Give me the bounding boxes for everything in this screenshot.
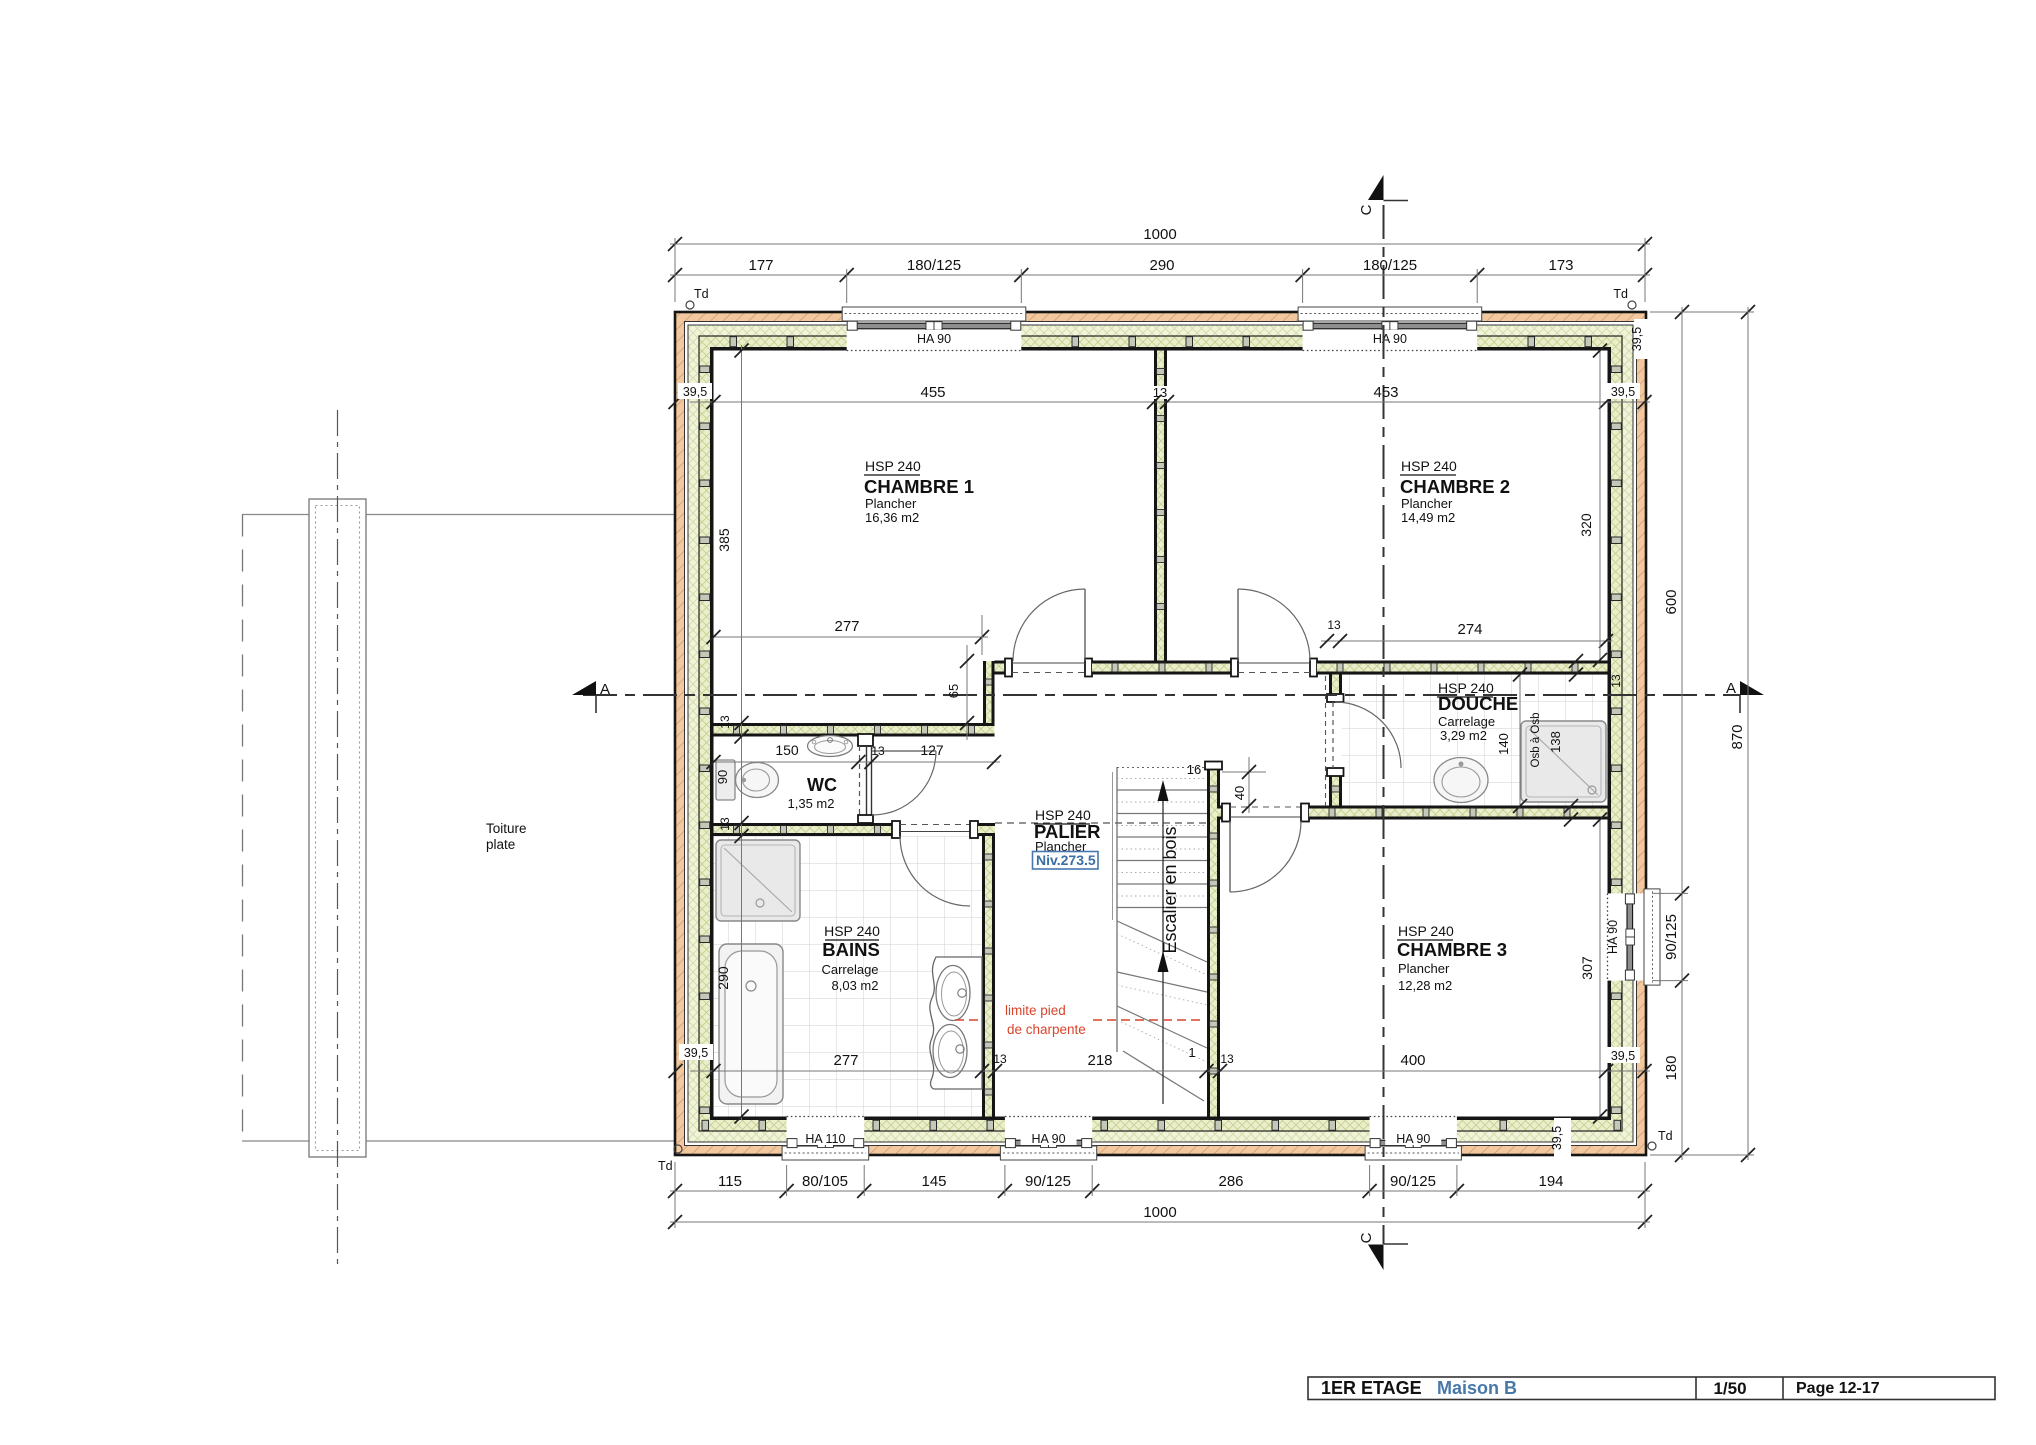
- svg-text:CHAMBRE 1: CHAMBRE 1: [864, 476, 974, 497]
- svg-text:Escalier en bois: Escalier en bois: [1160, 826, 1180, 953]
- svg-text:13: 13: [993, 1052, 1007, 1066]
- svg-text:127: 127: [920, 742, 944, 758]
- svg-text:HA 90: HA 90: [1032, 1132, 1066, 1146]
- svg-text:39,5: 39,5: [1550, 1126, 1564, 1150]
- svg-text:Carrelage: Carrelage: [821, 962, 878, 977]
- svg-text:13: 13: [1153, 385, 1167, 400]
- svg-text:A: A: [600, 681, 610, 698]
- svg-text:150: 150: [775, 742, 799, 758]
- svg-text:194: 194: [1538, 1173, 1563, 1190]
- svg-text:320: 320: [1578, 513, 1594, 537]
- svg-text:455: 455: [920, 384, 945, 401]
- svg-text:39,5: 39,5: [1611, 385, 1635, 399]
- svg-text:65: 65: [946, 684, 961, 698]
- svg-text:HA 90: HA 90: [1396, 1132, 1430, 1146]
- svg-text:1,35 m2: 1,35 m2: [788, 796, 835, 811]
- svg-text:HSP 240: HSP 240: [1398, 923, 1454, 939]
- svg-text:218: 218: [1087, 1052, 1112, 1069]
- svg-text:1: 1: [1188, 1045, 1195, 1060]
- svg-text:1000: 1000: [1143, 1204, 1176, 1221]
- svg-text:1000: 1000: [1143, 226, 1176, 243]
- svg-text:plate: plate: [486, 837, 515, 852]
- svg-text:13: 13: [1609, 674, 1623, 688]
- svg-text:177: 177: [748, 257, 773, 274]
- svg-text:140: 140: [1496, 733, 1511, 755]
- svg-text:3,29 m2: 3,29 m2: [1440, 728, 1487, 743]
- svg-text:173: 173: [1548, 257, 1573, 274]
- svg-text:CHAMBRE 3: CHAMBRE 3: [1397, 939, 1507, 960]
- svg-text:Osb à Osb: Osb à Osb: [1530, 713, 1542, 768]
- svg-text:453: 453: [1373, 384, 1398, 401]
- svg-text:90/125: 90/125: [1025, 1173, 1071, 1190]
- svg-text:Td: Td: [1658, 1129, 1673, 1143]
- svg-text:290: 290: [715, 966, 731, 990]
- svg-text:400: 400: [1400, 1052, 1425, 1069]
- svg-text:180: 180: [1663, 1055, 1680, 1080]
- svg-text:385: 385: [716, 528, 732, 552]
- svg-text:39,5: 39,5: [1630, 327, 1644, 351]
- svg-text:180/125: 180/125: [1363, 257, 1417, 274]
- svg-text:40: 40: [1232, 786, 1247, 800]
- svg-text:Plancher: Plancher: [1398, 961, 1450, 976]
- svg-text:12,28 m2: 12,28 m2: [1398, 978, 1452, 993]
- svg-text:C: C: [1358, 204, 1375, 215]
- svg-text:HSP 240: HSP 240: [1401, 458, 1457, 474]
- svg-text:HSP 240: HSP 240: [824, 923, 880, 939]
- svg-text:90/125: 90/125: [1390, 1173, 1436, 1190]
- svg-text:HA 110: HA 110: [805, 1132, 845, 1146]
- svg-text:8,03 m2: 8,03 m2: [832, 978, 879, 993]
- svg-text:90/125: 90/125: [1663, 914, 1680, 960]
- svg-text:Td: Td: [1613, 287, 1628, 301]
- svg-text:DOUCHE: DOUCHE: [1438, 693, 1518, 714]
- svg-text:115: 115: [718, 1173, 742, 1190]
- svg-text:307: 307: [1579, 956, 1595, 980]
- svg-text:180/125: 180/125: [907, 257, 961, 274]
- svg-text:Carrelage: Carrelage: [1438, 714, 1495, 729]
- svg-text:277: 277: [833, 1052, 858, 1069]
- svg-text:13: 13: [871, 744, 885, 758]
- svg-text:39,5: 39,5: [1611, 1049, 1635, 1063]
- svg-text:1/50: 1/50: [1713, 1379, 1746, 1398]
- svg-text:13: 13: [718, 817, 732, 831]
- svg-text:Toiture: Toiture: [486, 821, 527, 836]
- svg-text:80/105: 80/105: [802, 1173, 848, 1190]
- svg-text:13: 13: [1327, 618, 1341, 632]
- svg-text:870: 870: [1729, 724, 1746, 749]
- svg-text:14,49 m2: 14,49 m2: [1401, 510, 1455, 525]
- svg-text:90: 90: [715, 770, 730, 784]
- svg-text:138: 138: [1548, 731, 1563, 753]
- svg-text:HA 90: HA 90: [1373, 332, 1407, 346]
- svg-text:Niv.273.5: Niv.273.5: [1036, 852, 1096, 868]
- svg-text:286: 286: [1218, 1173, 1243, 1190]
- svg-text:39,5: 39,5: [683, 385, 707, 399]
- svg-text:1ER ETAGE: 1ER ETAGE: [1321, 1378, 1422, 1398]
- svg-text:HA 90: HA 90: [1606, 920, 1620, 954]
- svg-text:39,5: 39,5: [684, 1046, 708, 1060]
- svg-text:C: C: [1358, 1232, 1375, 1243]
- svg-text:290: 290: [1149, 257, 1174, 274]
- svg-text:13: 13: [718, 715, 732, 729]
- svg-text:277: 277: [834, 618, 859, 635]
- svg-text:Td: Td: [694, 287, 709, 301]
- svg-text:Maison B: Maison B: [1437, 1378, 1517, 1398]
- svg-text:16,36 m2: 16,36 m2: [865, 510, 919, 525]
- svg-text:Td: Td: [658, 1159, 673, 1173]
- svg-text:13: 13: [1220, 1052, 1234, 1066]
- svg-text:de charpente: de charpente: [1007, 1022, 1086, 1037]
- svg-text:16: 16: [1187, 762, 1201, 777]
- svg-text:A: A: [1726, 680, 1736, 697]
- svg-text:274: 274: [1457, 621, 1482, 638]
- svg-text:HSP 240: HSP 240: [865, 458, 921, 474]
- svg-text:Plancher: Plancher: [1401, 496, 1453, 511]
- svg-text:limite pied: limite pied: [1005, 1003, 1066, 1018]
- svg-text:600: 600: [1663, 589, 1680, 614]
- svg-text:Page 12-17: Page 12-17: [1796, 1380, 1880, 1397]
- svg-text:Plancher: Plancher: [865, 496, 917, 511]
- svg-text:WC: WC: [807, 775, 837, 795]
- svg-text:BAINS: BAINS: [822, 939, 880, 960]
- svg-text:145: 145: [921, 1173, 946, 1190]
- svg-text:HA 90: HA 90: [917, 332, 951, 346]
- svg-text:CHAMBRE 2: CHAMBRE 2: [1400, 476, 1510, 497]
